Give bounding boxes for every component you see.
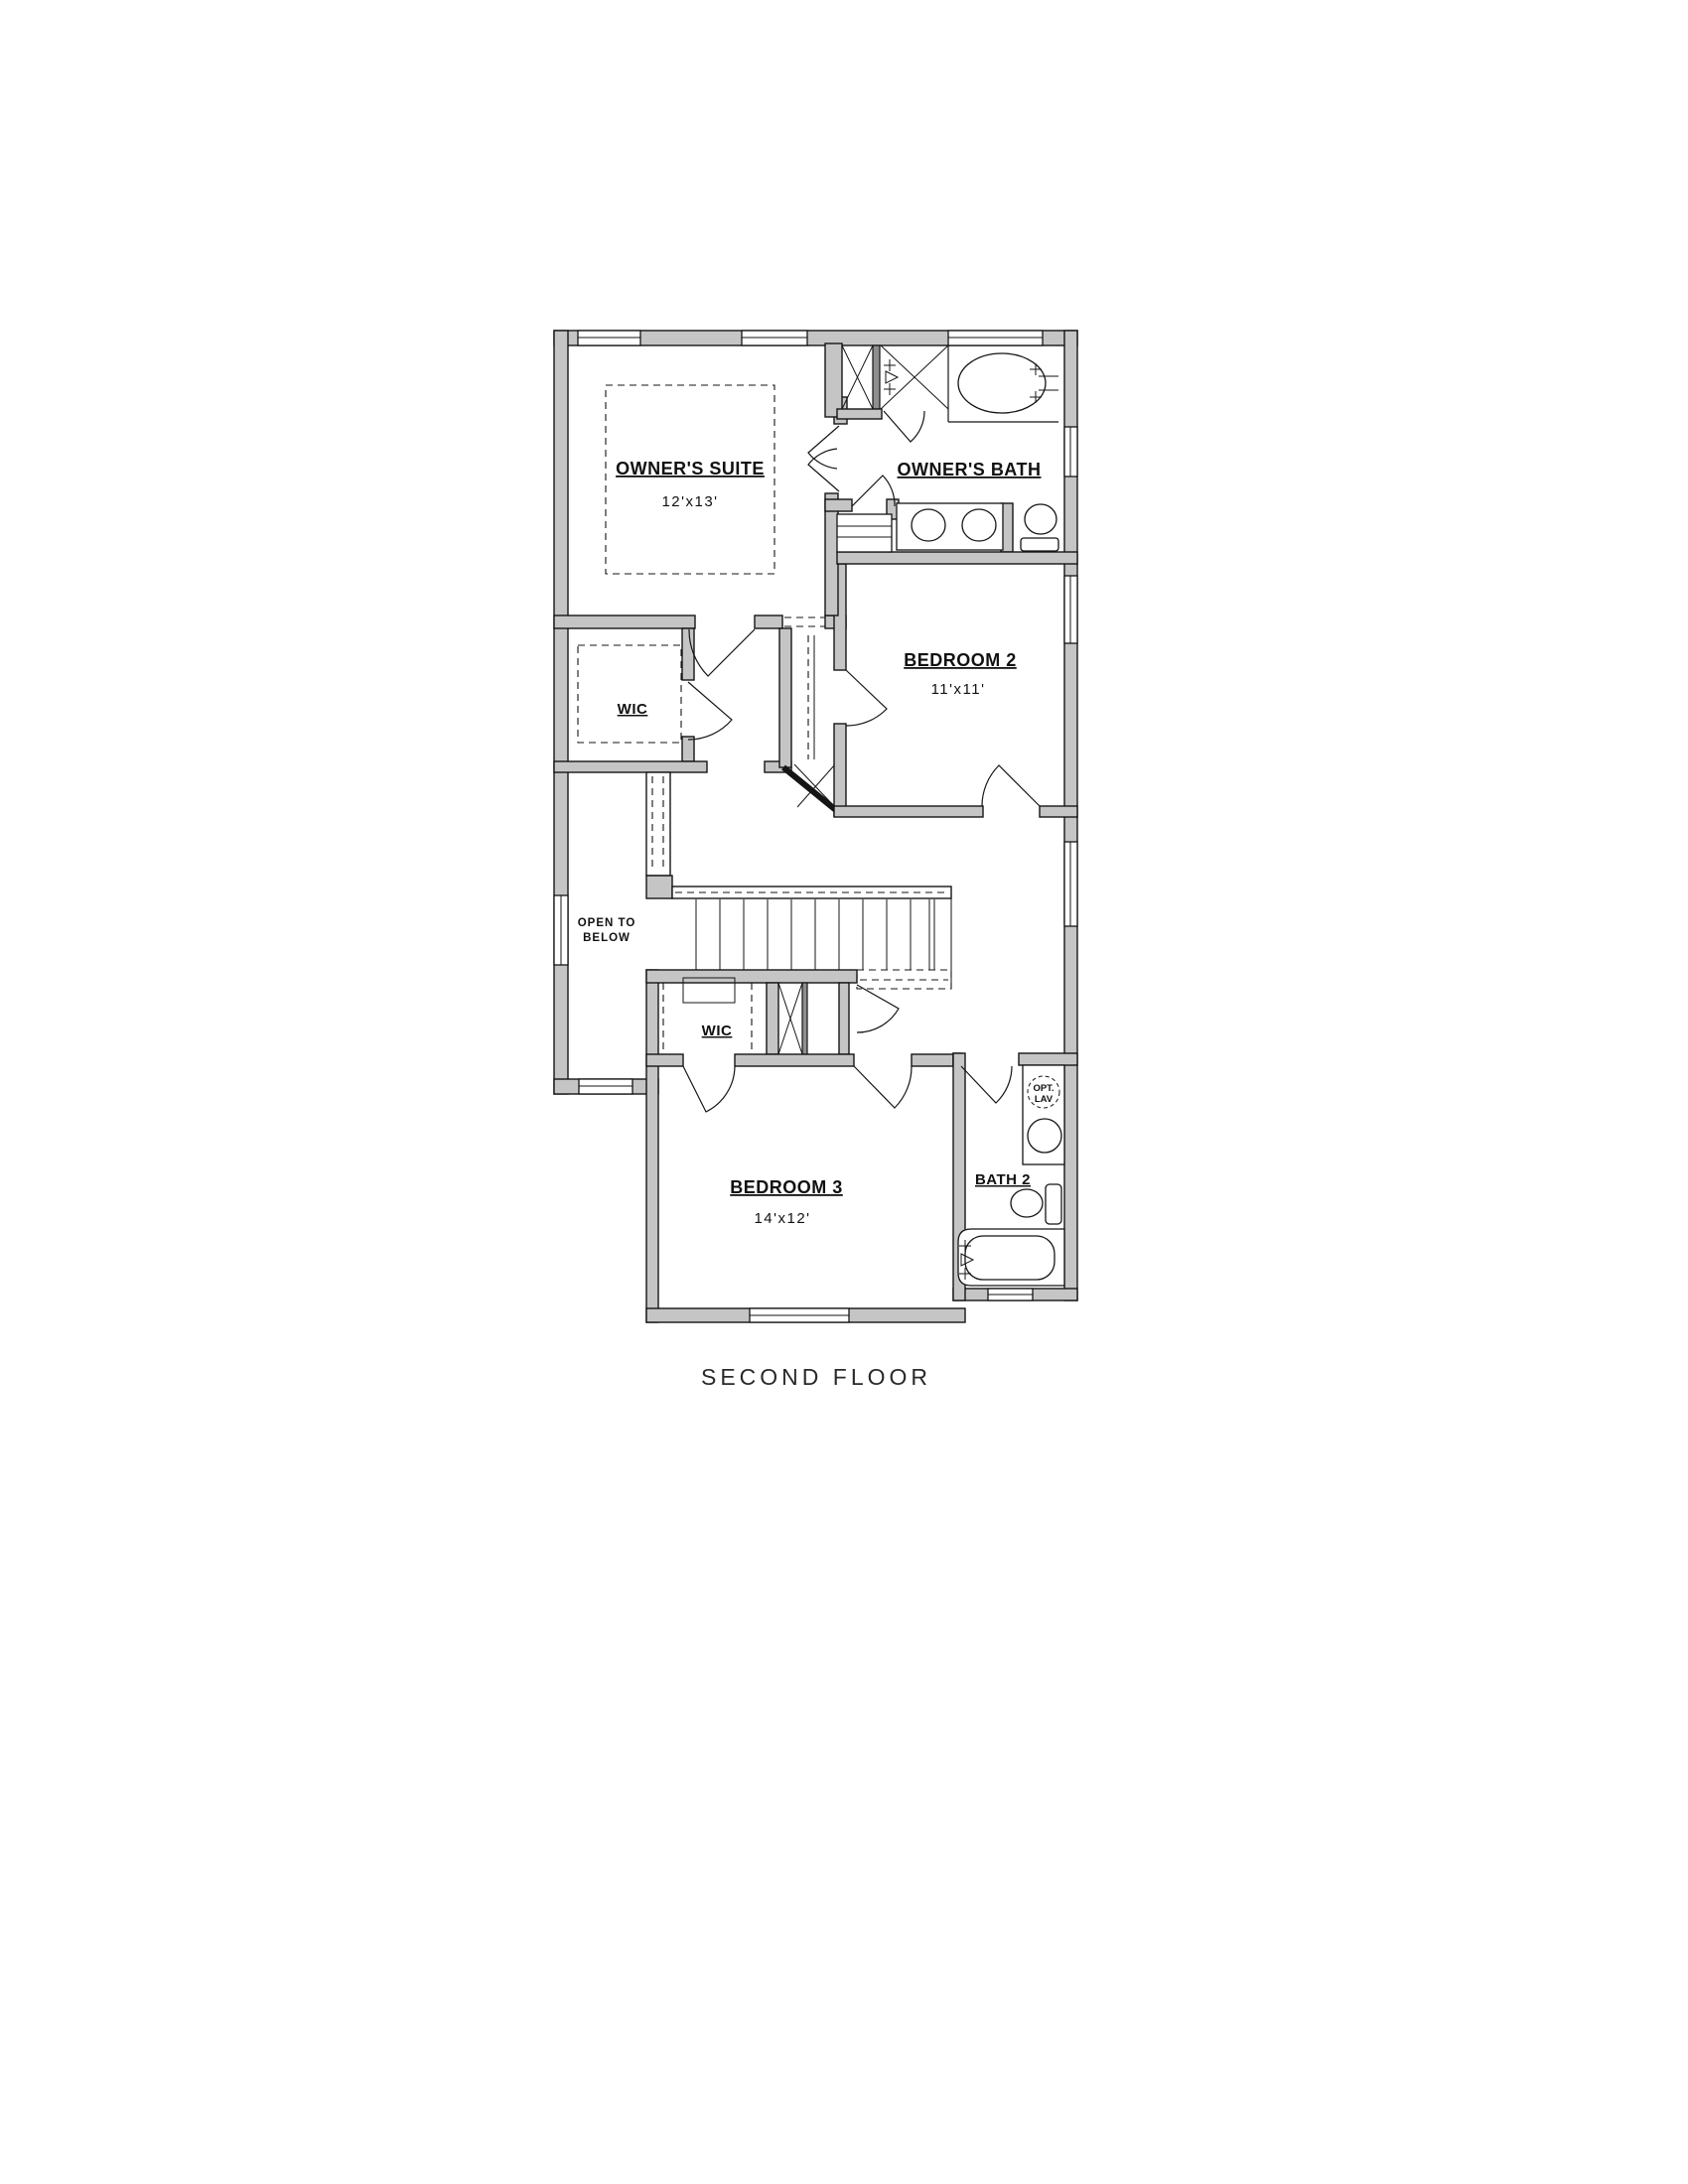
suite-double-door-leaf (808, 426, 839, 469)
bath2-toilet (1011, 1184, 1061, 1224)
owners-suite-label: OWNER'S SUITE (616, 459, 765, 478)
bath2-opt-lav-line2: LAV (1035, 1094, 1054, 1105)
bedroom3-label: BEDROOM 3 (730, 1177, 843, 1197)
wic-owners-label: WIC (618, 701, 648, 718)
bedroom2-dims: 11'x11' (931, 681, 986, 698)
window (750, 1308, 849, 1322)
bath2-door (961, 1066, 1012, 1103)
toilet (1021, 504, 1058, 551)
window (1064, 576, 1077, 643)
floor-caption: SECOND FLOOR (701, 1364, 931, 1390)
interior-walls (554, 343, 1077, 1300)
wic-owners-shelving (578, 645, 681, 743)
cabinet (837, 514, 892, 552)
bedroom2-west-door (846, 670, 887, 726)
owners-bath-fixtures (837, 345, 1058, 552)
window (554, 895, 568, 965)
stair-half-wall (646, 772, 670, 876)
owners-bath-label: OWNER'S BATH (898, 460, 1042, 479)
wic-bedroom3-label: WIC (702, 1023, 733, 1039)
bedroom3-dims: 14'x12' (754, 1210, 810, 1227)
bathtub (948, 345, 1058, 422)
hall-linen-closet (778, 983, 802, 1054)
window (1064, 842, 1077, 926)
bath2-tub (958, 1229, 1064, 1286)
owners-suite-door (689, 629, 755, 676)
window (988, 1289, 1033, 1300)
shower (881, 345, 948, 409)
wic-bedroom3-door (683, 1066, 735, 1112)
owners-suite-dims: 12'x13' (661, 493, 718, 510)
tray-ceiling-outline (606, 385, 774, 574)
shower-door (884, 411, 924, 442)
window (1064, 427, 1077, 477)
bath2-vanity (1023, 1065, 1064, 1164)
bath2-opt-lav-line1: OPT. (1033, 1083, 1054, 1094)
bedroom2-south-door (982, 765, 1040, 806)
window (948, 331, 1043, 345)
hall-closet-door (857, 985, 899, 1032)
open-to-below-label-line2: BELOW (583, 932, 631, 944)
window (742, 331, 807, 345)
floor-plan-page: OWNER'S SUITE 12'x13' OWNER'S BATH BEDRO… (0, 0, 1688, 2184)
floor-plan-svg: OWNER'S SUITE 12'x13' OWNER'S BATH BEDRO… (0, 0, 1688, 2184)
bath2-label: BATH 2 (975, 1171, 1031, 1188)
window (578, 331, 640, 345)
stair-treads (696, 899, 934, 970)
linen-closet (842, 345, 873, 409)
bedroom3-door (854, 1066, 912, 1108)
bedroom2-label: BEDROOM 2 (904, 650, 1017, 670)
open-to-below-label-line1: OPEN TO (578, 917, 636, 929)
wic-owners-door (688, 682, 732, 740)
wic-bedroom3-shelving (663, 978, 752, 1052)
double-vanity (897, 503, 1003, 550)
suite-double-door-leaf (808, 449, 839, 491)
newel-post (646, 876, 672, 898)
window (579, 1079, 633, 1094)
